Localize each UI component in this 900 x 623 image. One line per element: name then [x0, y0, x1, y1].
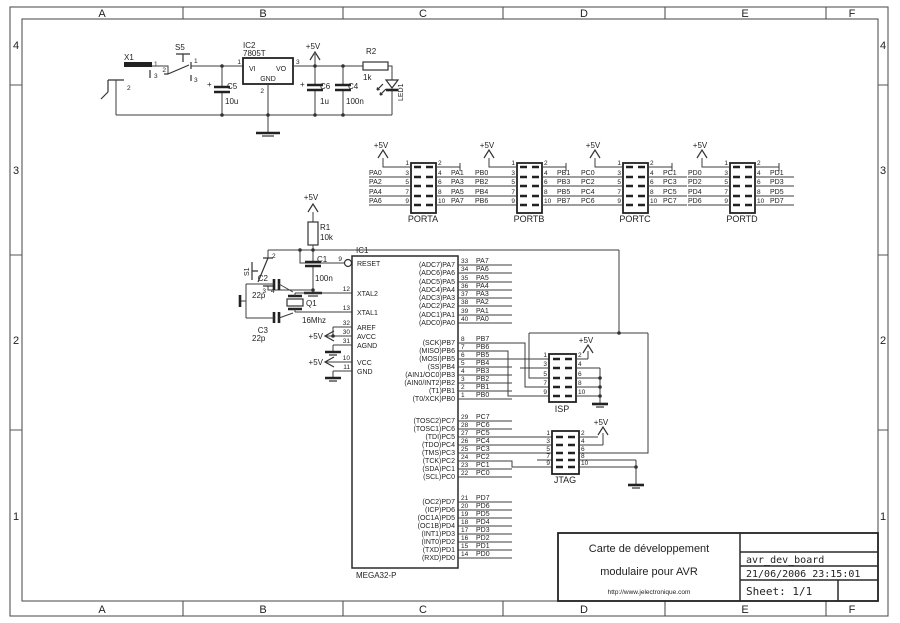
mcu-pin-number: 20 — [461, 503, 469, 510]
ic2-pin-number: 3 — [296, 59, 300, 66]
header-pin-number: 6 — [544, 179, 548, 186]
mcu-pin-name: (SCL)PC0 — [423, 474, 455, 481]
mcu-pin-number: 14 — [461, 551, 469, 558]
mcu-pin-number: 28 — [461, 422, 469, 429]
mcu-pin-number: 15 — [461, 543, 469, 550]
s1-pin-number: 2 — [272, 253, 276, 260]
mcu-pin-name: (OC1A)PD5 — [418, 515, 455, 522]
net-label: PB3 — [557, 179, 570, 186]
frame-row-label: 3 — [13, 165, 19, 177]
net-label: PB6 — [476, 344, 489, 351]
header-pin-number: 8 — [757, 189, 761, 196]
mcu-pin-name: (INT1)PD3 — [422, 531, 456, 538]
net-label: PA6 — [476, 266, 489, 273]
project-name: avr_dev_board — [746, 555, 824, 566]
net-label: PC1 — [476, 462, 490, 469]
mcu-pin-name: AVCC — [357, 334, 376, 341]
mcu-pin-number: 7 — [461, 344, 465, 351]
mcu-pin-number: 32 — [343, 320, 351, 327]
ic2-regulator-symbol — [243, 58, 363, 136]
mcu-pin-number: 17 — [461, 527, 469, 534]
schematic-page: A B C D E F A B C D E F 4 3 2 1 4 3 2 1 … — [0, 0, 900, 623]
mcu-pin-name: (MISO)PB6 — [419, 348, 455, 355]
net-label: PC6 — [581, 198, 595, 205]
mcu-pin-number: 9 — [338, 256, 342, 263]
header-pin-number: 7 — [511, 189, 515, 196]
net-label: PA4 — [476, 283, 489, 290]
c5-value-label: 10u — [225, 97, 238, 106]
net-label: PA1 — [451, 170, 464, 177]
c5-ref-label: C5 — [227, 82, 238, 91]
header-pin-number: 10 — [438, 198, 446, 205]
net-label: PB1 — [476, 384, 489, 391]
frame-col-label: C — [419, 8, 427, 20]
net-label: PD0 — [688, 170, 702, 177]
c1-ref-label: C1 — [317, 255, 328, 264]
header-pin-number: 1 — [724, 160, 728, 167]
s1-ref-label: S1 — [244, 267, 251, 276]
net-label: PC4 — [581, 189, 595, 196]
net-label: PD6 — [476, 503, 490, 510]
jtag-pin-number: 2 — [581, 430, 585, 437]
mcu-pin-number: 23 — [461, 462, 469, 469]
net-label: PA4 — [369, 189, 382, 196]
frame-col-label: E — [741, 8, 748, 20]
porta-5v-label: +5V — [374, 141, 389, 150]
isp-name-label: ISP — [555, 404, 570, 414]
header-pin-number: 6 — [438, 179, 442, 186]
vcc-5v-label: +5V — [309, 358, 324, 367]
net-label: PB1 — [557, 170, 570, 177]
jtag-name-label: JTAG — [554, 475, 576, 485]
jtag-wires — [458, 437, 552, 467]
mcu-pin-name: (TXD)PD1 — [423, 547, 455, 554]
frame-row-label: 3 — [880, 165, 886, 177]
led1-ref-label: LED1 — [398, 83, 405, 101]
mcu-block: IC1 MEGA32-P RESET 9 XTAL2 12 XTAL1 13 A… — [309, 246, 648, 580]
frame-col-label: F — [849, 604, 856, 616]
net-label: PB6 — [475, 198, 488, 205]
frame-row-label: 4 — [13, 40, 19, 52]
net-label: PA3 — [476, 291, 489, 298]
power-supply-section: X1 1 3 2 S5 1 2 3 + C5 10u IC2 7805T VI … — [101, 41, 405, 136]
isp-header: +5V 1 3 5 7 9 2 4 6 8 10 ISP — [520, 336, 608, 414]
net-label: PD2 — [688, 179, 702, 186]
ic2-vi-label: VI — [249, 66, 256, 73]
header-pin-number: 7 — [617, 189, 621, 196]
mcu-pin-number: 1 — [461, 392, 465, 399]
header-pin-number: 4 — [544, 170, 548, 177]
mcu-pin-number: 6 — [461, 352, 465, 359]
c6-value-label: 1u — [320, 97, 329, 106]
mcu-pin-name: (TDI)PC5 — [425, 434, 455, 441]
net-label: PD7 — [476, 495, 490, 502]
mcu-pin-number: 29 — [461, 414, 469, 421]
frame-row-label: 1 — [880, 511, 886, 523]
mcu-pin-name: (AIN1/OC0)PB3 — [405, 372, 455, 379]
mcu-pin-name: (T0/XCK)PB0 — [413, 396, 456, 403]
sheet-number: Sheet: 1/1 — [746, 585, 812, 598]
mcu-pin-number: 30 — [343, 329, 351, 336]
x1-pin-number: 3 — [154, 73, 158, 80]
header-name-label: PORTB — [514, 214, 545, 224]
header-pin-number: 2 — [757, 160, 761, 167]
mcu-pin-name: (TMS)PC3 — [422, 450, 455, 457]
mcu-pin-number: 31 — [343, 338, 351, 345]
header-pin-number: 4 — [438, 170, 442, 177]
net-label: PB5 — [476, 352, 489, 359]
header-pin-number: 1 — [511, 160, 515, 167]
net-label: PC3 — [663, 179, 677, 186]
header-pin-number: 10 — [650, 198, 658, 205]
net-label: PB7 — [476, 336, 489, 343]
jtag-pin-number: 5 — [546, 446, 550, 453]
mcu-pin-name: RESET — [357, 261, 381, 268]
isp-pin-number: 9 — [543, 389, 547, 396]
frame-col-label: B — [259, 8, 266, 20]
mcu-pin-number: 38 — [461, 299, 469, 306]
header-pin-number: 7 — [405, 189, 409, 196]
header-name-label: PORTC — [619, 214, 651, 224]
frame-row-label: 4 — [880, 40, 886, 52]
mcu-pin-number: 36 — [461, 283, 469, 290]
header-pin-number: 10 — [757, 198, 765, 205]
mcu-pin-number: 34 — [461, 266, 469, 273]
net-label: PC7 — [476, 414, 490, 421]
mcu-pin-name: AGND — [357, 343, 377, 350]
header-pin-number: 5 — [511, 179, 515, 186]
frame-col-label: B — [259, 604, 266, 616]
header-pin-number: 6 — [757, 179, 761, 186]
net-label: PD4 — [476, 519, 490, 526]
mcu-pin-number: 35 — [461, 275, 469, 282]
net-label: PA5 — [476, 275, 489, 282]
c6-ref-label: C6 — [320, 82, 331, 91]
jtag-pin-number: 3 — [546, 438, 550, 445]
jtag-pin-number: 9 — [546, 460, 550, 467]
isp-pin-number: 1 — [543, 352, 547, 359]
ic2-pin-number: 2 — [260, 88, 264, 95]
mcu-pin-name: (ADC3)PA3 — [419, 295, 455, 302]
portd-5v-label: +5V — [693, 141, 708, 150]
mcu-pin-name: (ADC1)PA1 — [419, 312, 455, 319]
header-pin-number: 9 — [511, 198, 515, 205]
c2-ref-label: C2 — [258, 274, 269, 283]
s5-ref-label: S5 — [175, 43, 185, 52]
net-label: PC0 — [476, 470, 490, 477]
mcu-pin-name: (ADC6)PA6 — [419, 270, 455, 277]
header-pin-number: 3 — [405, 170, 409, 177]
header-name-label: PORTA — [408, 214, 438, 224]
frame-row-label: 2 — [880, 335, 886, 347]
header-pin-number: 5 — [724, 179, 728, 186]
net-label: PC0 — [581, 170, 595, 177]
mcu-pin-number: 40 — [461, 316, 469, 323]
header-pin-number: 6 — [650, 179, 654, 186]
net-label: PB2 — [476, 376, 489, 383]
isp-5v-label: +5V — [579, 336, 594, 345]
mcu-pin-number: 27 — [461, 430, 469, 437]
header-pin-number: 8 — [544, 189, 548, 196]
mcu-pin-number: 26 — [461, 438, 469, 445]
mcu-pin-name: AREF — [357, 325, 376, 332]
net-label: PD3 — [770, 179, 784, 186]
header-pin-number: 7 — [724, 189, 728, 196]
net-label: PA3 — [451, 179, 464, 186]
net-label: PD1 — [770, 170, 784, 177]
porta-header: +5V 1 3 5 7 9 2 4 6 8 10 PA0 PA2 PA4 PA6… — [369, 141, 475, 224]
net-label: PD0 — [476, 551, 490, 558]
x1-ref-label: X1 — [124, 53, 134, 62]
net-label: PA1 — [476, 308, 489, 315]
portb-5v-label: +5V — [480, 141, 495, 150]
mcu-pin-name: XTAL2 — [357, 291, 378, 298]
ic2-vo-label: VO — [276, 66, 287, 73]
mcu-pin-name: (TDO)PC4 — [422, 442, 455, 449]
header-pin-number: 3 — [617, 170, 621, 177]
header-pin-number: 2 — [438, 160, 442, 167]
isp-pin-number: 6 — [578, 371, 582, 378]
portd-header: +5V 1 3 5 7 9 2 4 6 8 10 PD0 PD2 PD4 PD6… — [688, 141, 794, 224]
spi-wires — [458, 343, 549, 396]
c6-plus-sign: + — [300, 80, 305, 89]
frame-col-label: E — [741, 604, 748, 616]
net-label: PD4 — [688, 189, 702, 196]
net-label: PC2 — [581, 179, 595, 186]
net-label: PA7 — [476, 258, 489, 265]
net-label: PA7 — [451, 198, 464, 205]
mcu-pin-name: VCC — [357, 360, 372, 367]
ic2-part-label: 7805T — [243, 49, 266, 58]
isp-pin-number: 4 — [578, 361, 582, 368]
net-label: PA6 — [369, 198, 382, 205]
mcu-pin-number: 22 — [461, 470, 469, 477]
mcu-pin-name: (INT0)PD2 — [422, 539, 456, 546]
isp-pin-number: 5 — [543, 371, 547, 378]
mcu-pin-number: 21 — [461, 495, 469, 502]
power-5v-label: +5V — [306, 42, 321, 51]
isp-pin-number: 7 — [543, 380, 547, 387]
net-label: PC6 — [476, 422, 490, 429]
jtag-pin-number: 7 — [546, 453, 550, 460]
net-label: PD7 — [770, 198, 784, 205]
title-line-1: Carte de développement — [589, 543, 709, 555]
frame-col-label: A — [98, 604, 106, 616]
mcu-part-label: MEGA32-P — [356, 571, 396, 580]
mcu-pin-number: 13 — [343, 305, 351, 312]
c1-value-label: 100n — [315, 274, 333, 283]
mcu-pin-number: 5 — [461, 360, 465, 367]
mcu-pin-name: (ICP)PD6 — [425, 507, 455, 514]
mcu-pin-name: (ADC7)PA7 — [419, 262, 455, 269]
header-pin-number: 10 — [544, 198, 552, 205]
net-label: PC5 — [476, 430, 490, 437]
crystal-section: C2 22p C3 22p Q1 16Mhz — [240, 274, 352, 343]
header-pin-number: 9 — [405, 198, 409, 205]
power-5v-arrow — [310, 52, 320, 66]
frame-col-label: F — [849, 8, 856, 20]
jtag-5v-label: +5V — [594, 418, 609, 427]
mcu-pin-name: (AIN0/INT2)PB2 — [404, 380, 455, 387]
jtag-pin-number: 10 — [581, 460, 589, 467]
net-label: PA2 — [369, 179, 382, 186]
net-label: PC4 — [476, 438, 490, 445]
r1-ref-label: R1 — [320, 223, 331, 232]
x1-pin-number: 1 — [154, 61, 158, 68]
r2-ref-label: R2 — [366, 47, 377, 56]
mcu-pin-number: 37 — [461, 291, 469, 298]
mcu-pin-number: 16 — [461, 535, 469, 542]
s5-pin-number: 1 — [194, 58, 198, 65]
isp-pin-number: 3 — [543, 361, 547, 368]
header-pin-number: 2 — [650, 160, 654, 167]
net-label: PB5 — [557, 189, 570, 196]
header-pin-number: 1 — [617, 160, 621, 167]
mcu-pin-name: (T1)PB1 — [429, 388, 455, 395]
mcu-pin-name: (ADC5)PA5 — [419, 279, 455, 286]
frame-col-label: D — [580, 604, 588, 616]
net-label: PB4 — [475, 189, 488, 196]
s5-pin-number: 3 — [194, 77, 198, 84]
mcu-pin-number: 25 — [461, 446, 469, 453]
net-label: PA5 — [451, 189, 464, 196]
mcu-pin-number: 18 — [461, 519, 469, 526]
mcu-pin-name: XTAL1 — [357, 310, 378, 317]
r1-5v-arrow — [308, 204, 318, 222]
net-label: PD5 — [770, 189, 784, 196]
mcu-pin-name: (SS)PB4 — [428, 364, 455, 371]
ic2-gnd-label: GND — [260, 76, 276, 83]
net-label: PA0 — [369, 170, 382, 177]
net-label: PD6 — [688, 198, 702, 205]
net-label: PA2 — [476, 299, 489, 306]
header-pin-number: 8 — [650, 189, 654, 196]
frame-col-label: D — [580, 8, 588, 20]
header-pin-number: 4 — [757, 170, 761, 177]
frame-col-label: C — [419, 604, 427, 616]
mcu-pin-name: GND — [357, 369, 373, 376]
net-label: PD1 — [476, 543, 490, 550]
avcc-5v-label: +5V — [309, 332, 324, 341]
portb-header: +5V 1 3 5 7 9 2 4 6 8 10 PB0 PB2 PB4 PB6… — [475, 141, 581, 224]
mcu-pin-number: 8 — [461, 336, 465, 343]
r1-value-label: 10k — [320, 233, 334, 242]
led1-symbol — [377, 80, 398, 115]
title-block: Carte de développement modulaire pour AV… — [558, 533, 878, 601]
net-label: PB7 — [557, 198, 570, 205]
header-pin-number: 8 — [438, 189, 442, 196]
mcu-pin-number: 12 — [343, 286, 351, 293]
net-label: PA0 — [476, 316, 489, 323]
net-label: PB4 — [476, 360, 489, 367]
mcu-pin-name: (SCK)PB7 — [423, 340, 455, 347]
mcu-pin-number: 10 — [343, 355, 351, 362]
header-pin-number: 3 — [724, 170, 728, 177]
net-label: PC3 — [476, 446, 490, 453]
net-label: PB0 — [475, 170, 488, 177]
isp-pin-number: 8 — [578, 380, 582, 387]
header-pin-number: 9 — [724, 198, 728, 205]
c2-value-label: 22p — [252, 291, 266, 300]
header-pin-number: 9 — [617, 198, 621, 205]
mcu-pin-number: 39 — [461, 308, 469, 315]
mcu-pin-name: (ADC0)PA0 — [419, 320, 455, 327]
reset-net-wire — [268, 245, 619, 250]
title-line-2: modulaire pour AVR — [600, 566, 698, 578]
mcu-pin-name: (RXD)PD0 — [422, 555, 455, 562]
mcu-pin-number: 4 — [461, 368, 465, 375]
title-url: http://www.jelectronique.com — [608, 589, 691, 596]
c5-plus-sign: + — [207, 80, 212, 89]
portc-5v-label: +5V — [586, 141, 601, 150]
header-name-label: PORTD — [726, 214, 758, 224]
net-label: PC2 — [476, 454, 490, 461]
jtag-pin-number: 1 — [546, 430, 550, 437]
mcu-pin-name: (OC2)PD7 — [422, 499, 455, 506]
mcu-pin-name: (TCK)PC2 — [423, 458, 455, 465]
portc-header: +5V 1 3 5 7 9 2 4 6 8 10 PC0 PC2 PC4 PC6… — [581, 141, 687, 224]
reset-pin-inverter-circle — [345, 260, 352, 267]
date-time: 21/06/2006 23:15:01 — [746, 569, 860, 580]
q1-ref-label: Q1 — [306, 299, 317, 308]
mcu-pin-name: (OC1B)PD4 — [418, 523, 455, 530]
mcu-pin-name: (ADC2)PA2 — [419, 303, 455, 310]
header-pin-number: 1 — [405, 160, 409, 167]
frame-row-label: 2 — [13, 335, 19, 347]
s5-pin-number: 2 — [162, 67, 166, 74]
frame-row-label: 1 — [13, 511, 19, 523]
mcu-pin-number: 24 — [461, 454, 469, 461]
mcu-ref-label: IC1 — [356, 246, 369, 255]
net-label: PC5 — [663, 189, 677, 196]
net-label: PD2 — [476, 535, 490, 542]
isp-pin-number: 2 — [578, 352, 582, 359]
c3-value-label: 22p — [252, 334, 266, 343]
mcu-pin-name: (SDA)PC1 — [422, 466, 455, 473]
r2-value-label: 1k — [363, 73, 372, 82]
frame-col-label: A — [98, 8, 106, 20]
header-pin-number: 2 — [544, 160, 548, 167]
x1-pin-number: 2 — [127, 85, 131, 92]
mcu-pin-number: 19 — [461, 511, 469, 518]
isp-pin-number: 10 — [578, 389, 586, 396]
c4-ref-label: C4 — [348, 82, 359, 91]
net-label: PD3 — [476, 527, 490, 534]
net-label: PD5 — [476, 511, 490, 518]
mcu-pin-number: 11 — [343, 364, 350, 371]
net-label: PB0 — [476, 392, 489, 399]
mcu-pin-number: 33 — [461, 258, 469, 265]
net-label: PC1 — [663, 170, 677, 177]
net-label: PB2 — [475, 179, 488, 186]
jtag-pin-number: 8 — [581, 453, 585, 460]
header-pin-number: 3 — [511, 170, 515, 177]
c4-value-label: 100n — [346, 97, 364, 106]
jtag-pin-number: 6 — [581, 446, 585, 453]
jtag-pin-number: 4 — [581, 438, 585, 445]
header-pin-number: 5 — [617, 179, 621, 186]
c3-capacitor-symbol — [246, 312, 293, 323]
mcu-pin-name: (MOSI)PB5 — [419, 356, 455, 363]
mcu-pin-number: 3 — [461, 376, 465, 383]
mcu-pin-name: (TOSC1)PC6 — [414, 426, 456, 433]
header-pin-number: 4 — [650, 170, 654, 177]
mcu-pin-number: 2 — [461, 384, 465, 391]
net-label: PB3 — [476, 368, 489, 375]
mcu-pin-name: (ADC4)PA4 — [419, 287, 455, 294]
q1-value-label: 16Mhz — [302, 316, 326, 325]
r1-resistor-symbol — [308, 222, 318, 245]
